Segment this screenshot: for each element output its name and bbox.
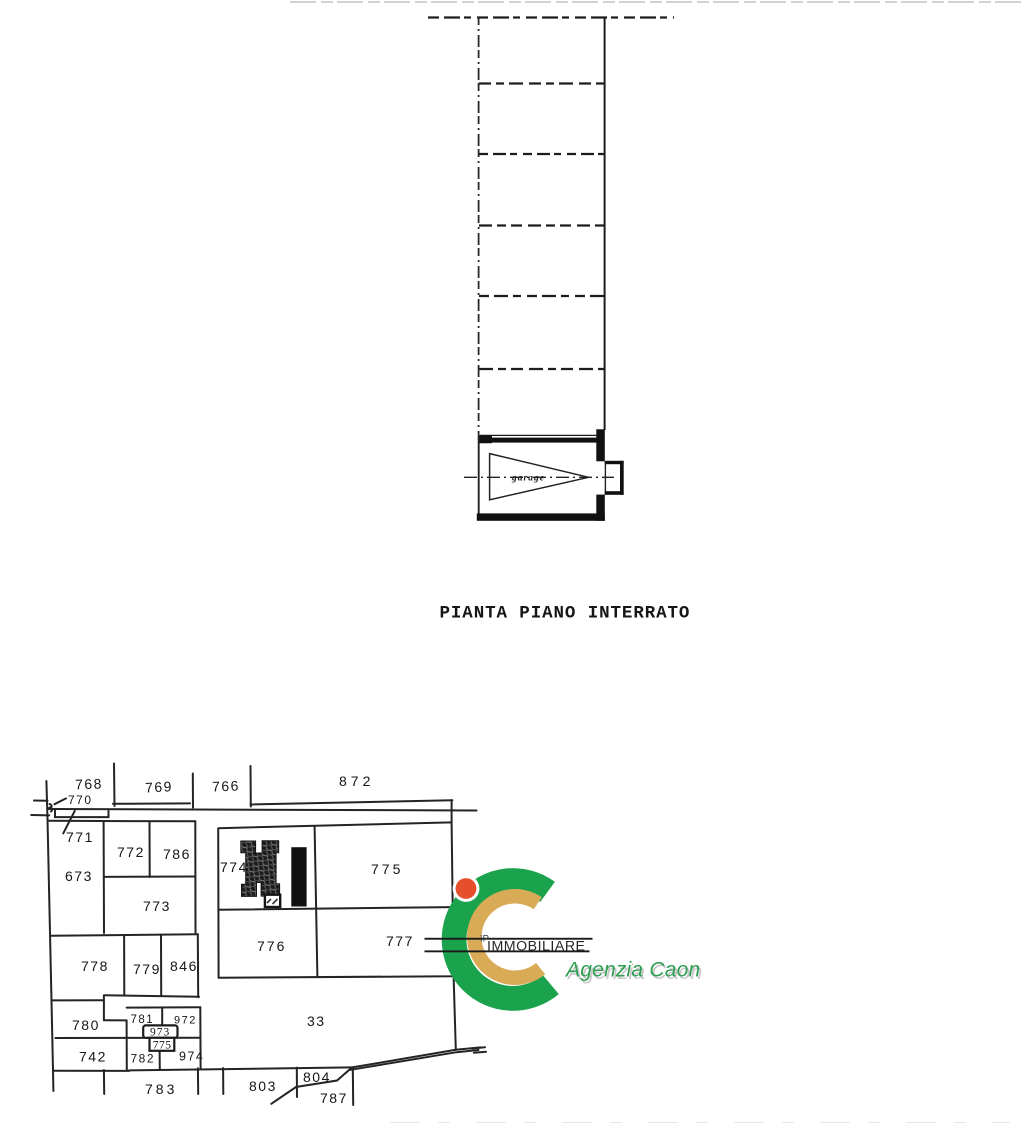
svg-text:780: 780	[72, 1017, 100, 1033]
svg-text:773: 773	[143, 898, 171, 914]
svg-text:974: 974	[179, 1050, 204, 1064]
svg-text:803: 803	[249, 1078, 277, 1094]
svg-text:IMMOBILIARE: IMMOBILIARE	[487, 939, 586, 955]
svg-text:768: 768	[75, 775, 103, 792]
svg-text:781: 781	[131, 1014, 155, 1026]
svg-text:779: 779	[133, 961, 161, 977]
svg-text:804: 804	[303, 1069, 331, 1085]
svg-text:778: 778	[81, 958, 109, 974]
svg-text:872: 872	[339, 773, 374, 789]
svg-text:782: 782	[131, 1052, 156, 1066]
svg-text:769: 769	[145, 778, 174, 795]
svg-text:776: 776	[257, 938, 286, 954]
svg-text:PIANTA PIANO INTERRATO: PIANTA PIANO INTERRATO	[440, 604, 691, 624]
svg-text:673: 673	[65, 868, 93, 884]
svg-text:770: 770	[68, 793, 93, 807]
svg-text:783: 783	[145, 1081, 177, 1097]
svg-text:846: 846	[170, 958, 198, 974]
svg-text:775: 775	[153, 1040, 172, 1052]
svg-text:972: 972	[174, 1014, 197, 1026]
svg-text:766: 766	[212, 777, 240, 794]
svg-text:742: 742	[79, 1049, 107, 1065]
svg-text:garage: garage	[511, 474, 545, 484]
svg-text:774: 774	[220, 859, 248, 875]
svg-text:Agenzia Caon: Agenzia Caon	[564, 959, 700, 982]
svg-text:33: 33	[307, 1013, 326, 1029]
svg-text:787: 787	[320, 1090, 348, 1106]
svg-text:777: 777	[386, 933, 414, 949]
svg-text:771: 771	[66, 829, 94, 845]
svg-text:786: 786	[163, 846, 191, 862]
svg-text:775: 775	[371, 861, 403, 877]
svg-text:772: 772	[117, 844, 145, 860]
